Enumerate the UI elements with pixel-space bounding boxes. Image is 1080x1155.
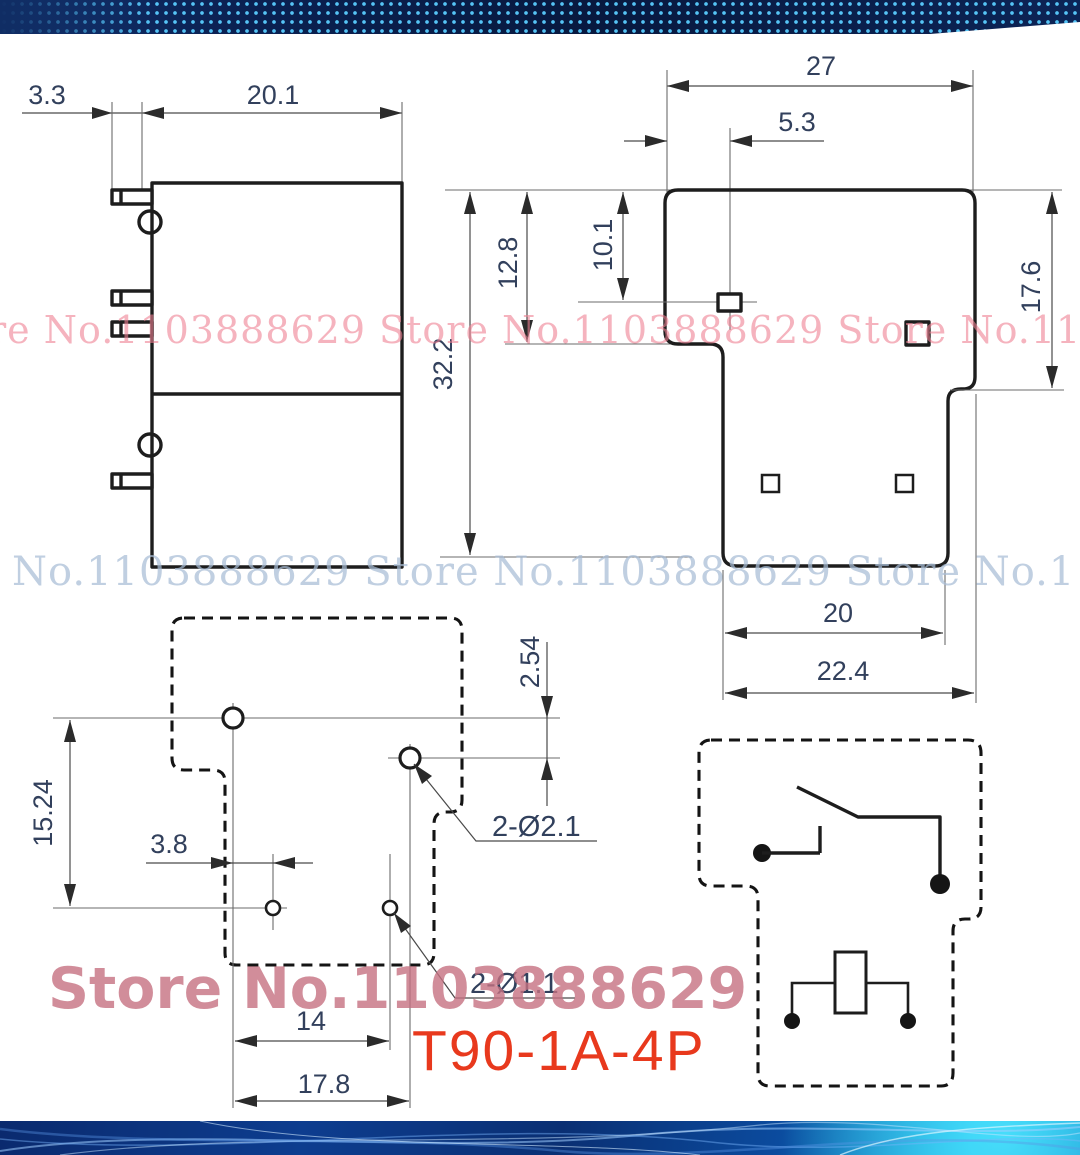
dim-col-offset: 3.8 (150, 829, 188, 859)
front-hole-square-top (906, 322, 929, 345)
hole-large-right (400, 748, 420, 768)
footprint-outline (172, 618, 462, 965)
side-pins (112, 190, 152, 488)
footer-graphic (0, 1121, 1080, 1155)
front-hole-square-right (896, 475, 913, 492)
dim-span-inner: 14 (296, 1006, 326, 1036)
dim-upper-height: 12.8 (493, 237, 523, 290)
front-body (665, 190, 975, 566)
schematic-outline (699, 740, 981, 1086)
height-dimensions: 32.2 12.8 10.1 (428, 190, 1062, 557)
front-pin-section (718, 294, 741, 311)
schematic-coil (784, 952, 916, 1029)
relay-schematic (699, 740, 981, 1086)
page: 3.3 20.1 32.2 (0, 0, 1080, 1155)
dim-front-width: 27 (806, 51, 836, 81)
dim-body-height: 32.2 (428, 338, 458, 391)
footer-decor-band (0, 1121, 1080, 1155)
front-view: 27 5.3 17.6 (578, 51, 1064, 703)
dim-grid-pitch: 2.54 (515, 636, 545, 689)
dim-span-outer: 17.8 (298, 1069, 351, 1099)
label-holes-large: 2-Ø2.1 (492, 811, 581, 843)
dim-row-pitch: 15.24 (28, 779, 58, 847)
dim-base-full-width: 22.4 (817, 656, 870, 686)
model-number-title: T90-1A-4P (412, 1018, 706, 1084)
hole-small-left (266, 901, 280, 915)
side-body (152, 183, 402, 567)
side-view: 3.3 20.1 (22, 80, 402, 567)
relay-dimension-drawing: 3.3 20.1 32.2 (0, 0, 1080, 1155)
dim-pin-length: 3.3 (28, 80, 66, 110)
schematic-contact (753, 787, 950, 894)
hole-large-top-left (223, 708, 243, 728)
dim-pin-offset: 5.3 (778, 107, 816, 137)
hole-small-right (383, 901, 397, 915)
dim-pin-inset: 10.1 (588, 219, 618, 272)
front-hole-square-left (762, 475, 779, 492)
dim-base-width: 20 (823, 598, 853, 628)
side-bump-bottom (139, 434, 161, 456)
dim-body-width: 20.1 (247, 80, 300, 110)
label-holes-small: 2-Ø1.1 (470, 968, 559, 1000)
side-bump-top (139, 211, 161, 233)
dim-right-height: 17.6 (1016, 261, 1046, 314)
